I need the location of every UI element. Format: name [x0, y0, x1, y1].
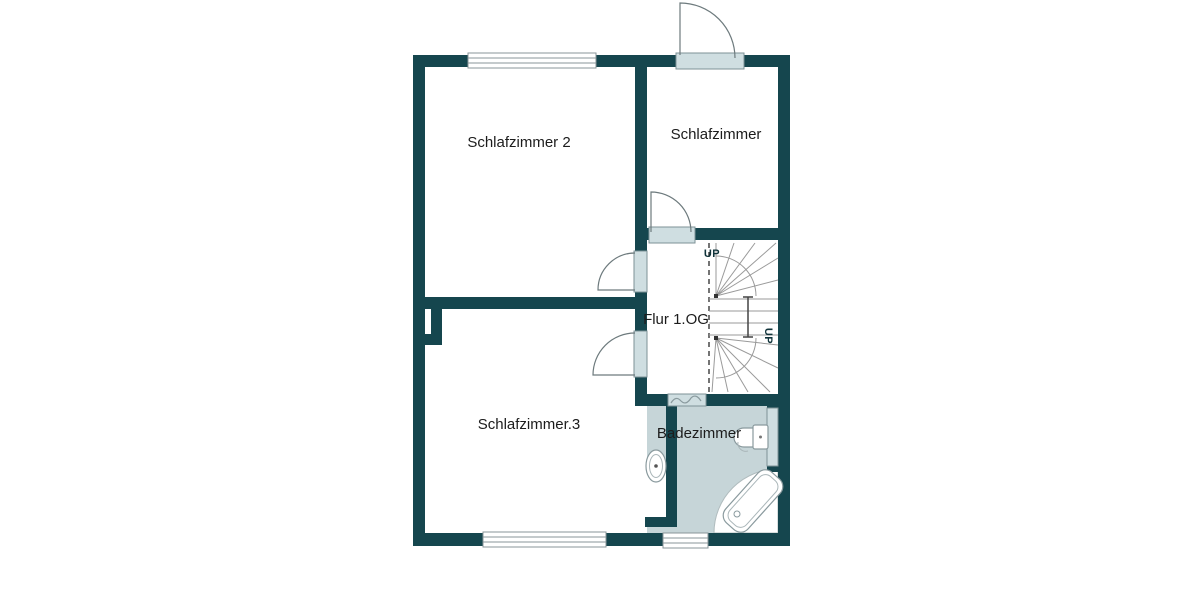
window-right-bathroom: [767, 408, 778, 466]
wall-center-vertical-lower: [635, 377, 647, 395]
wall-bedroom-bottom-right: [695, 228, 778, 240]
room-label-flur: Flur 1.OG: [643, 311, 709, 328]
wall-exterior-right: [778, 55, 790, 546]
wall-bedroom-divider: [413, 297, 647, 309]
window-top: [468, 53, 596, 68]
stair-walk-line: [714, 294, 753, 340]
room-label-schlafzimmer-2: Schlafzimmer 2: [467, 134, 570, 151]
door-bedroom-right: [649, 192, 695, 243]
door-bathroom-opening: [668, 394, 706, 406]
stair-treads: [709, 243, 778, 392]
room-label-schlafzimmer: Schlafzimmer: [671, 126, 762, 143]
stairs-up-label-side: UP: [762, 328, 774, 344]
window-bottom-bathroom: [663, 533, 708, 548]
room-label-schlafzimmer-3: Schlafzimmer.3: [478, 416, 581, 433]
wall-bedroom-bottom-left-stub: [635, 228, 649, 240]
wall-center-vertical-upper: [635, 67, 647, 251]
chimney-stub-horizontal: [413, 334, 442, 345]
stairs-up-label-top: UP: [704, 248, 720, 260]
wall-bathroom-niche-bottom: [645, 517, 677, 527]
wall-bathroom-top-left: [635, 394, 668, 406]
door-balcony: [676, 3, 744, 69]
room-label-badezimmer: Badezimmer: [657, 425, 741, 442]
door-bedroom3: [593, 331, 647, 377]
bathtub-drain: [734, 511, 740, 517]
floor-plan: UP UP Schlafzimmer 2 Schlafzimmer Schlaf…: [0, 0, 1200, 600]
door-bedroom2: [598, 251, 647, 292]
stairs: UP UP: [704, 243, 778, 392]
sink: [646, 450, 666, 482]
floor-plan-drawing: UP UP Schlafzimmer 2 Schlafzimmer Schlaf…: [0, 0, 1200, 600]
window-bottom-bedroom3: [483, 532, 606, 547]
